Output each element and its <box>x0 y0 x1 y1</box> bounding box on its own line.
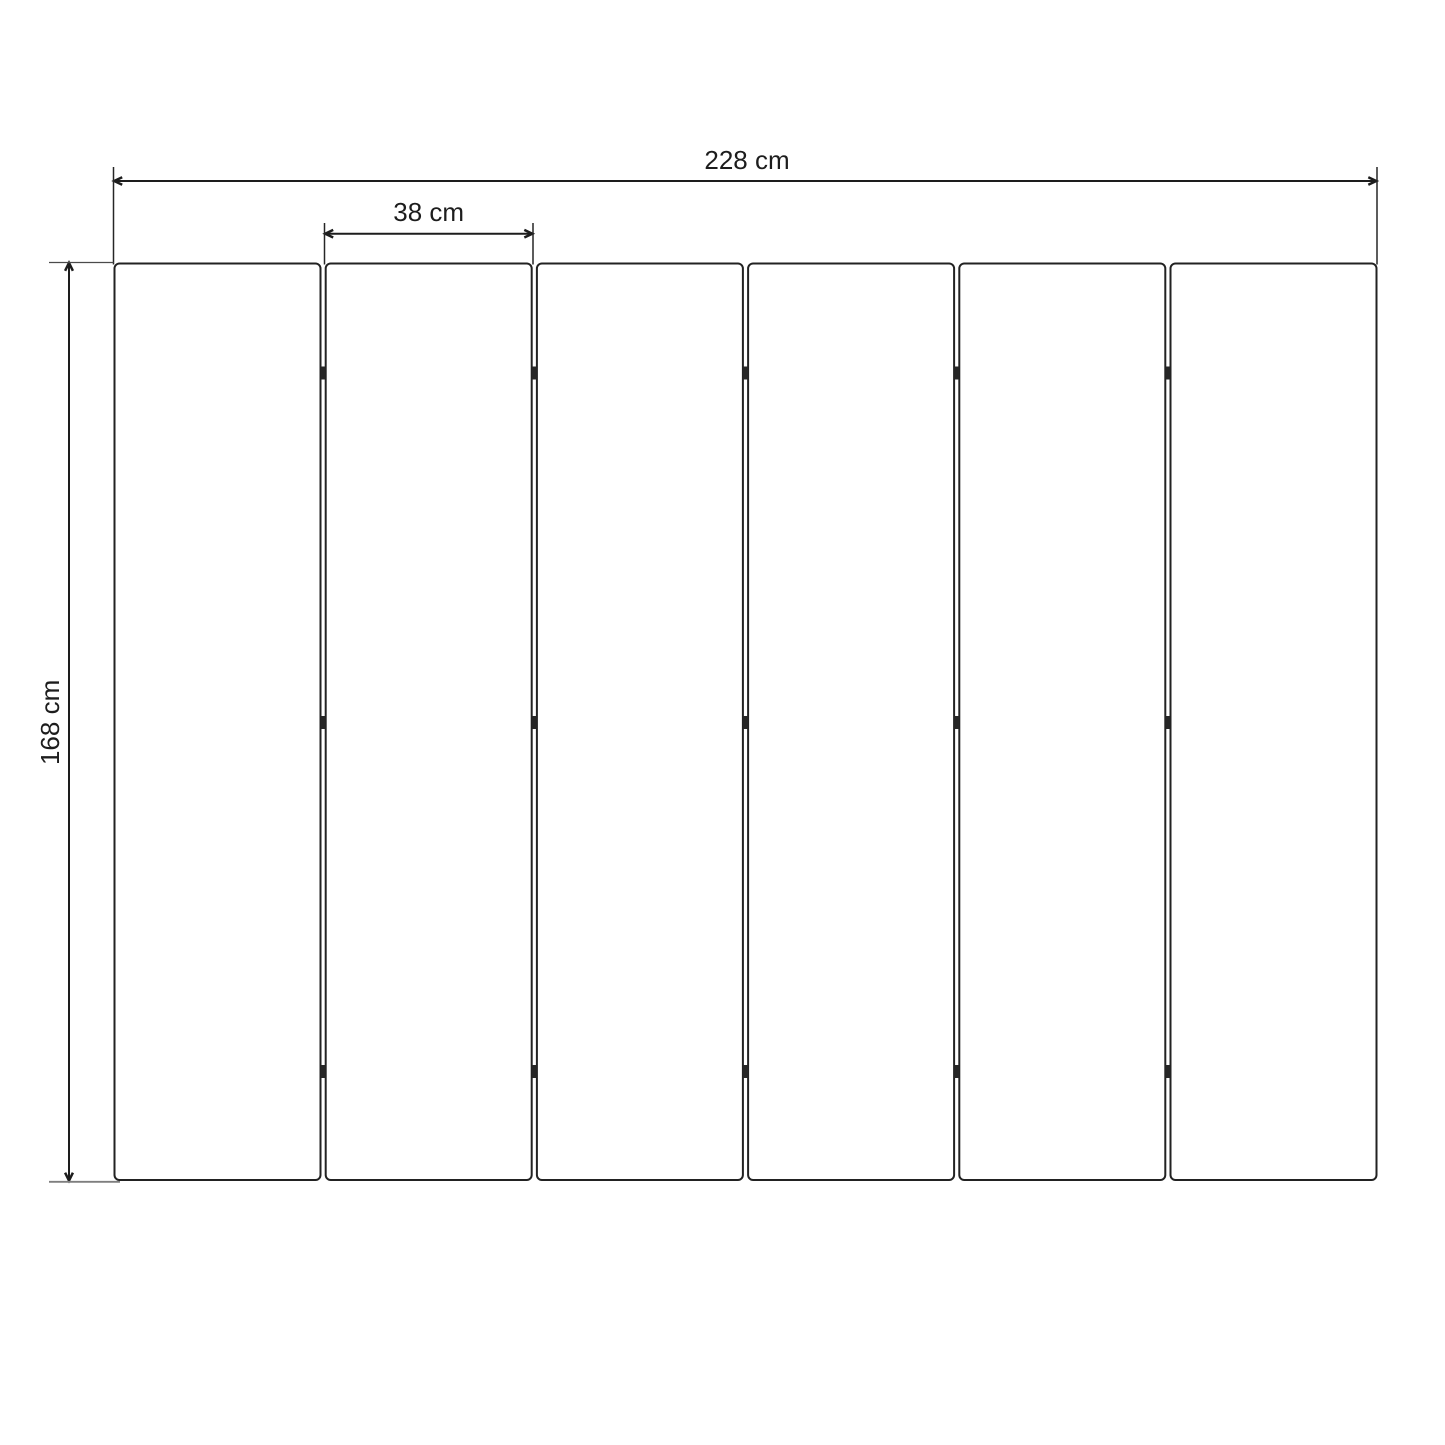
svg-text:38 cm: 38 cm <box>393 197 464 227</box>
svg-text:168 cm: 168 cm <box>35 680 65 765</box>
svg-text:228 cm: 228 cm <box>704 145 789 175</box>
